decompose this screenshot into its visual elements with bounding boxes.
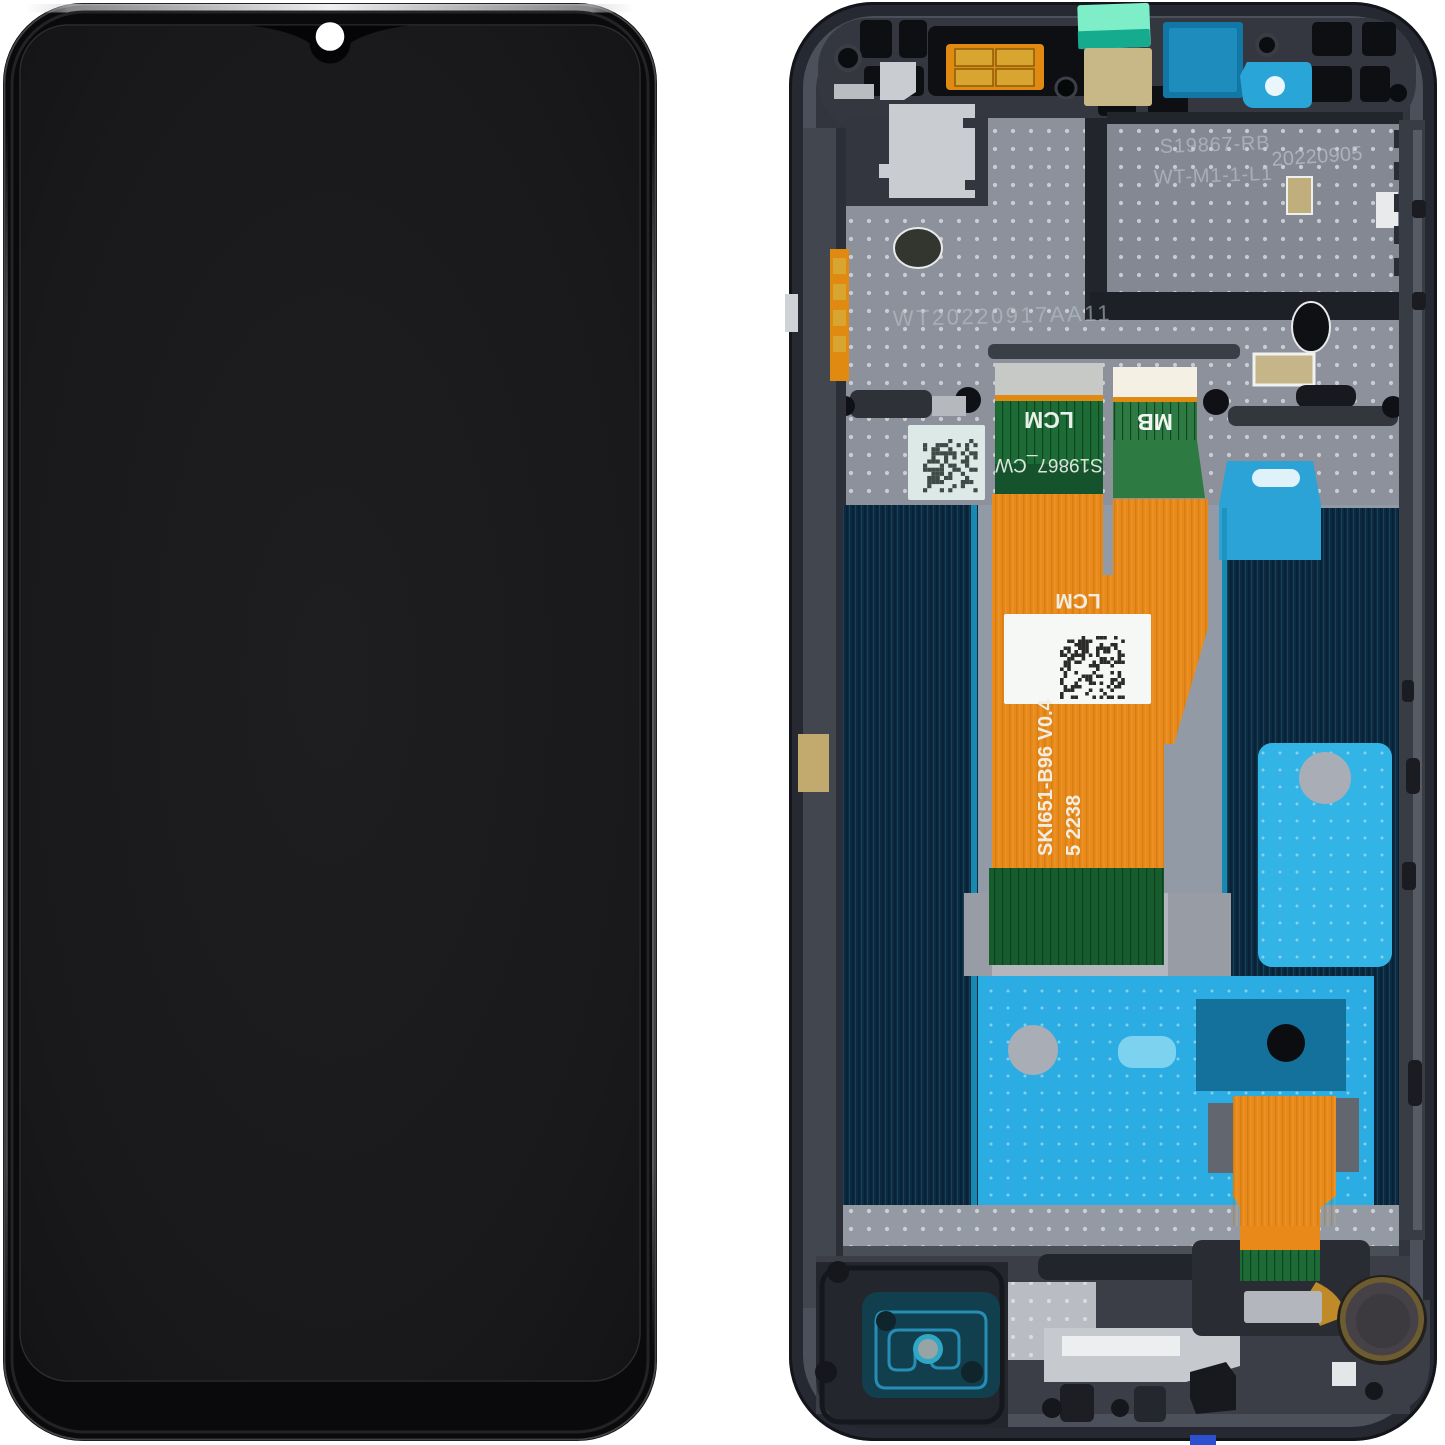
svg-text:LCM: LCM (1024, 407, 1074, 433)
svg-text:WT-M1-1-L1: WT-M1-1-L1 (1153, 163, 1273, 189)
svg-text:LCM: LCM (1055, 589, 1101, 612)
svg-text:5 2238: 5 2238 (1063, 795, 1085, 856)
svg-text:SKI651-B96 V0.4: SKI651-B96 V0.4 (1035, 698, 1057, 856)
svg-text:S19867-RB: S19867-RB (1159, 132, 1270, 158)
svg-text:S19867_CW: S19867_CW (995, 454, 1103, 475)
svg-text:MB: MB (1137, 409, 1173, 435)
